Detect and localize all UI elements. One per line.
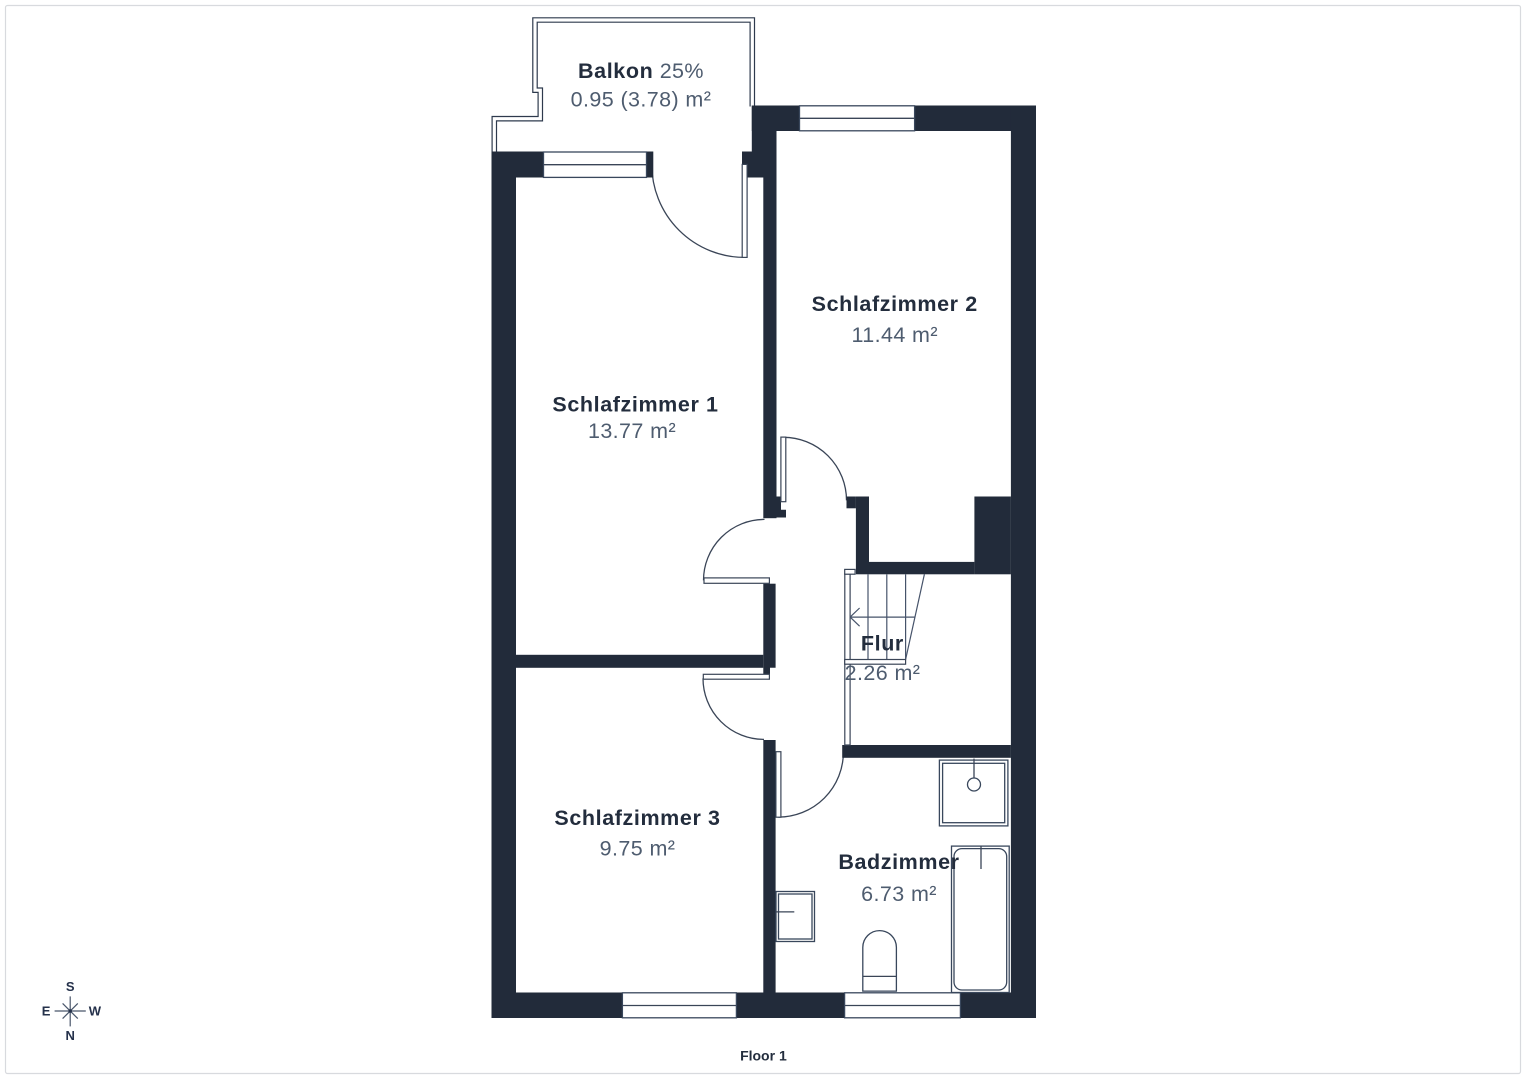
svg-text:9.75 m²: 9.75 m² [600, 836, 676, 860]
svg-text:Badzimmer: Badzimmer [838, 850, 959, 874]
svg-text:Balkon 25%: Balkon 25% [578, 59, 704, 83]
svg-text:Schlafzimmer 1: Schlafzimmer 1 [552, 392, 718, 416]
svg-text:13.77 m²: 13.77 m² [588, 419, 676, 443]
svg-text:W: W [89, 1003, 102, 1018]
svg-text:S: S [66, 979, 75, 994]
svg-text:0.95 (3.78) m²: 0.95 (3.78) m² [571, 88, 712, 112]
svg-text:11.44 m²: 11.44 m² [851, 323, 937, 347]
svg-text:2.26 m²: 2.26 m² [845, 661, 921, 685]
svg-text:6.73 m²: 6.73 m² [861, 882, 937, 906]
svg-text:N: N [66, 1028, 75, 1043]
svg-text:Schlafzimmer 3: Schlafzimmer 3 [554, 806, 720, 830]
svg-text:E: E [42, 1003, 51, 1018]
svg-text:Floor 1: Floor 1 [740, 1047, 787, 1063]
svg-text:Flur: Flur [861, 631, 904, 655]
svg-text:Schlafzimmer 2: Schlafzimmer 2 [812, 292, 978, 316]
